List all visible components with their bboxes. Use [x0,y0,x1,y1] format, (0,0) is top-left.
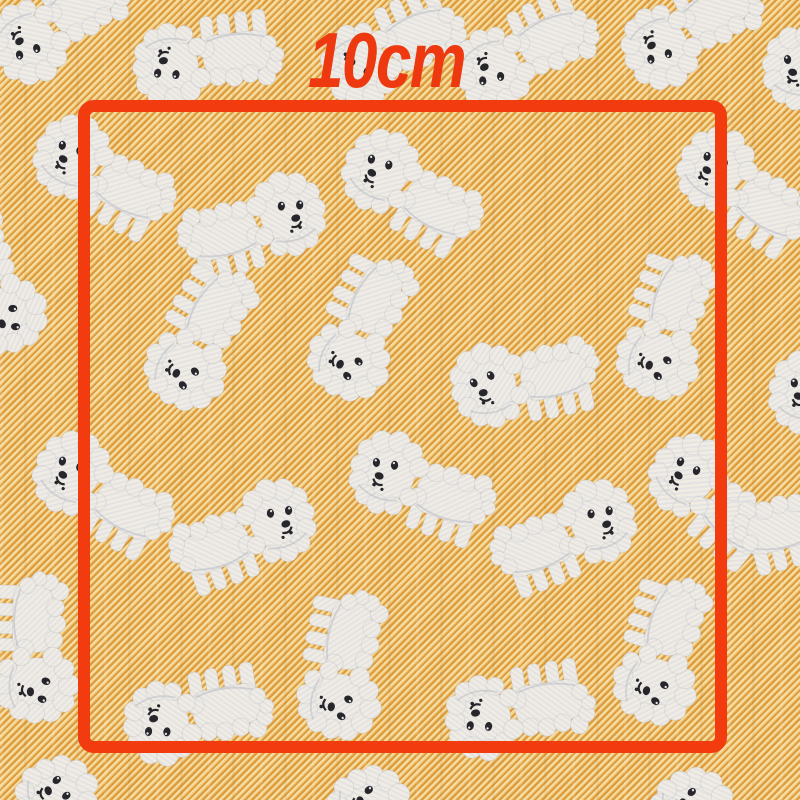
measurement-square-overlay [78,100,727,753]
dog-motif [127,7,289,114]
dog-motif [312,754,448,800]
fabric-swatch-photo: 10cm [0,0,800,800]
measurement-label: 10cm [308,21,465,99]
dog-motif [758,340,800,465]
dog-motif [635,756,771,800]
dog-motif [605,0,781,104]
dog-motif [0,571,82,725]
dog-motif [0,194,59,367]
dog-motif [0,0,148,100]
dog-motif [755,18,800,132]
